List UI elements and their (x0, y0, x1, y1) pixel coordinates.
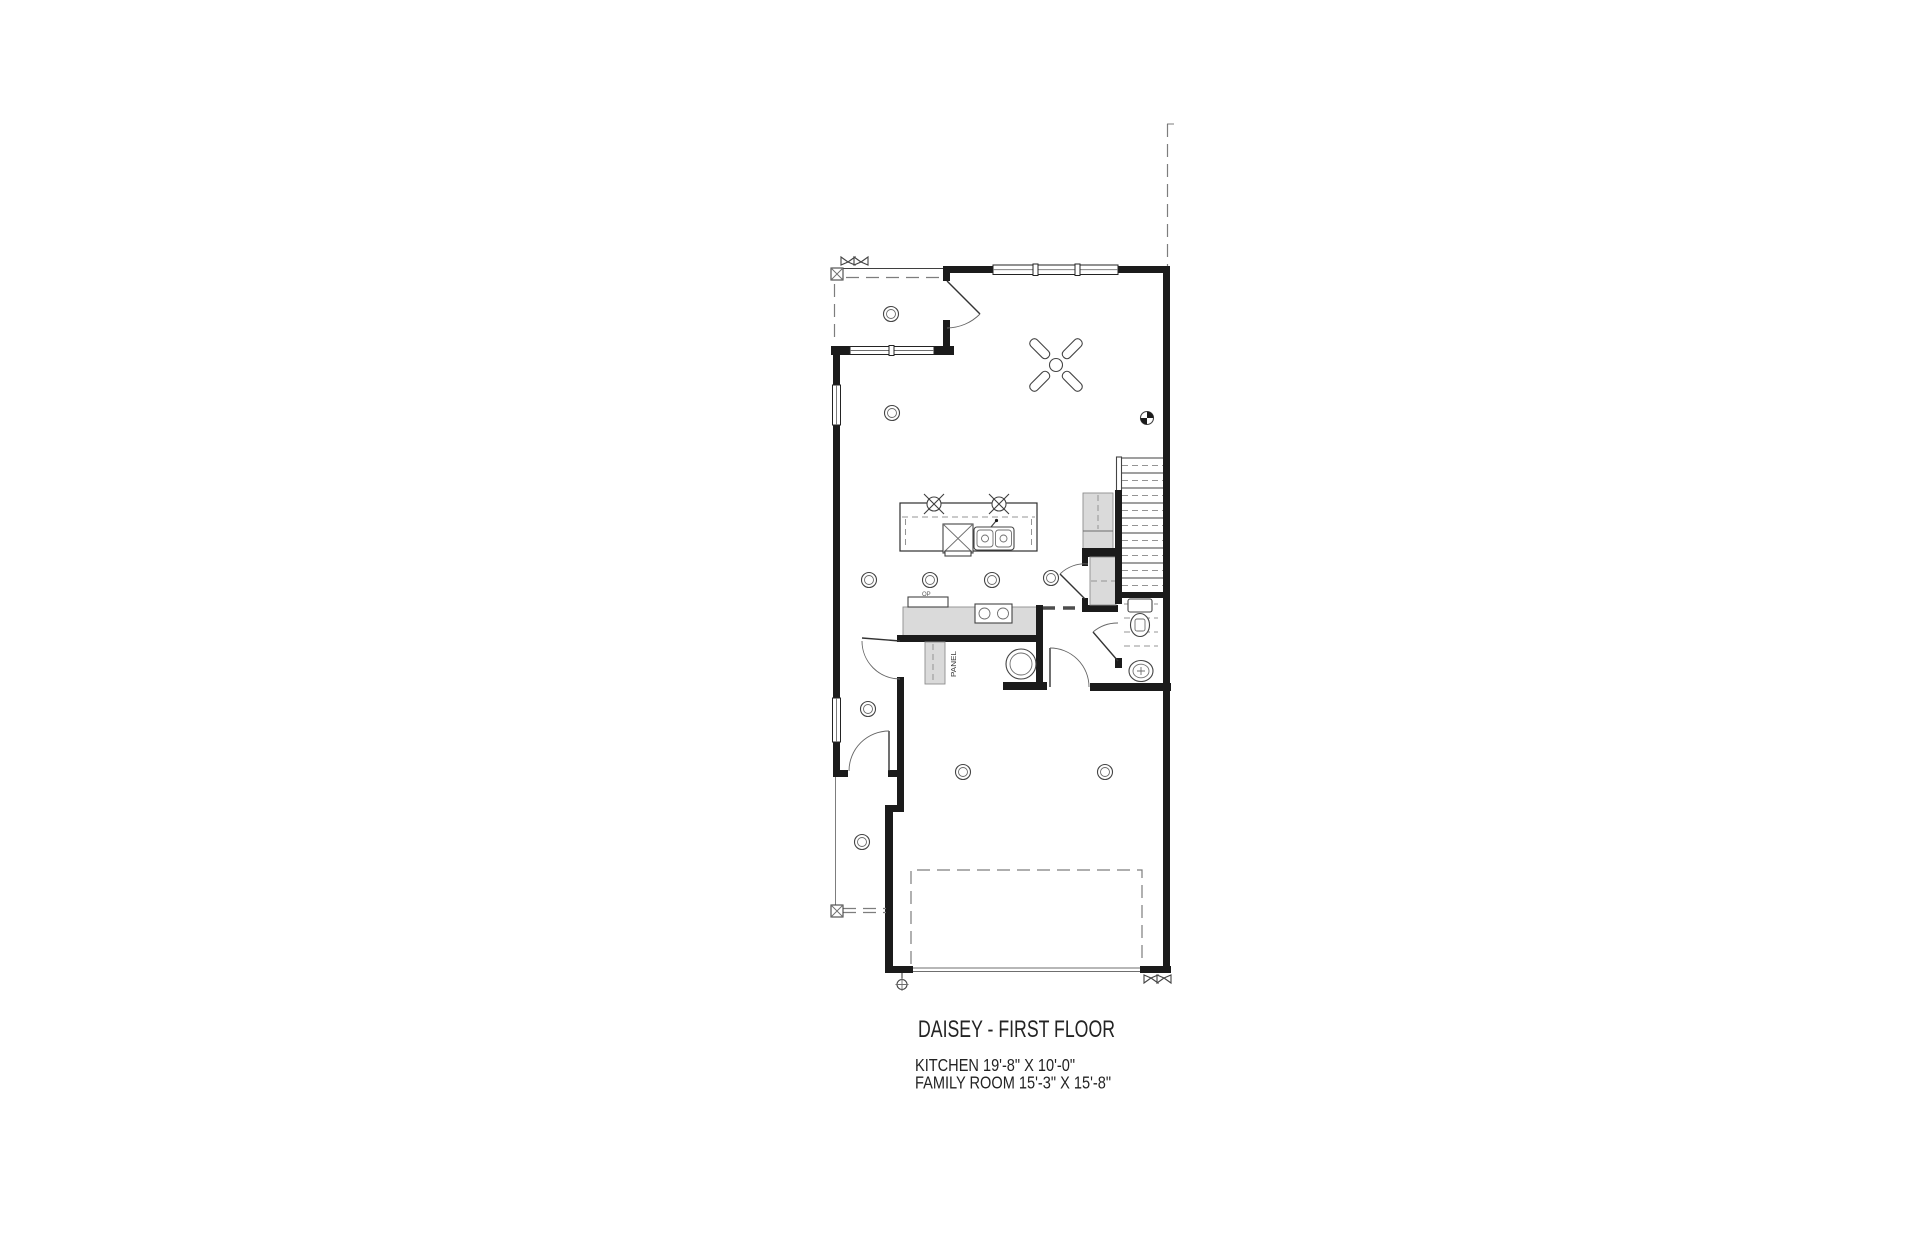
porch-window (850, 346, 934, 356)
refrigerator-icon (1083, 493, 1113, 549)
garage-entry-door (1050, 648, 1089, 687)
exterior-sconce-icon (1144, 975, 1158, 983)
floor-plan-drawing: OP (0, 0, 1920, 1242)
range-icon (975, 604, 1012, 623)
ceiling-light-icon (1044, 571, 1059, 586)
patio-column-icon (831, 905, 843, 917)
datum-marker-icon (1141, 412, 1154, 425)
dining-window (833, 385, 841, 425)
ceiling-light-icon (923, 573, 938, 588)
closet-door (1060, 564, 1088, 599)
water-heater-icon (1006, 649, 1036, 679)
porch-entry-door (947, 281, 980, 328)
dishwasher-icon (943, 524, 973, 556)
stair-rail (1117, 457, 1122, 491)
ceiling-light-icon (985, 573, 1000, 588)
powder-door (1093, 623, 1118, 661)
ceiling-light-icon (956, 765, 971, 780)
pantry-shelves (925, 642, 945, 684)
ceiling-light-icon (862, 573, 877, 588)
counter-note-box: OP (908, 592, 948, 607)
staircase (1115, 457, 1163, 598)
family-room-dimension: FAMILY ROOM 15'-3" X 15'-8" (915, 1073, 1111, 1093)
ceiling-light-icon (884, 307, 899, 322)
ceiling-light-icon (855, 835, 870, 850)
garage (896, 765, 1172, 992)
kitchen-counter (903, 607, 1040, 637)
ceiling-light-icon (861, 702, 876, 717)
patio (831, 777, 886, 917)
stair-treads (1122, 458, 1163, 586)
rear-hall (849, 702, 889, 772)
ceiling-fan-icon (1028, 337, 1084, 393)
porch-column-icon (831, 268, 843, 280)
electrical-panel-label: PANEL (949, 651, 958, 677)
floor-plan-sheet: OP (0, 0, 1920, 1242)
mud-hall (1036, 548, 1118, 690)
ceiling-light-icon (885, 406, 900, 421)
family-room-window (993, 264, 1118, 276)
powder-sink-icon (1129, 661, 1153, 682)
counter-note-label: OP (922, 592, 931, 598)
property-line (1167, 124, 1174, 266)
hose-bib-icon (896, 973, 909, 991)
kitchen: OP (862, 493, 1114, 642)
garage-door-open-position-dashed (911, 870, 1142, 964)
exterior-sconce-icon (854, 257, 868, 265)
patio-entry-door (849, 731, 889, 771)
utility-door (862, 638, 900, 679)
pendant-light-icon (989, 494, 1009, 514)
plan-title: DAISEY - FIRST FLOOR (918, 1016, 1115, 1043)
hall-window (833, 698, 841, 742)
exterior-sconce-icon (1157, 975, 1171, 983)
garage-door-sill (913, 968, 1140, 972)
exterior-sconce-icon (841, 257, 855, 265)
title-block: DAISEY - FIRST FLOOR KITCHEN 19'-8" X 10… (915, 1016, 1115, 1093)
ceiling-light-icon (1098, 765, 1113, 780)
pendant-light-icon (924, 494, 944, 514)
